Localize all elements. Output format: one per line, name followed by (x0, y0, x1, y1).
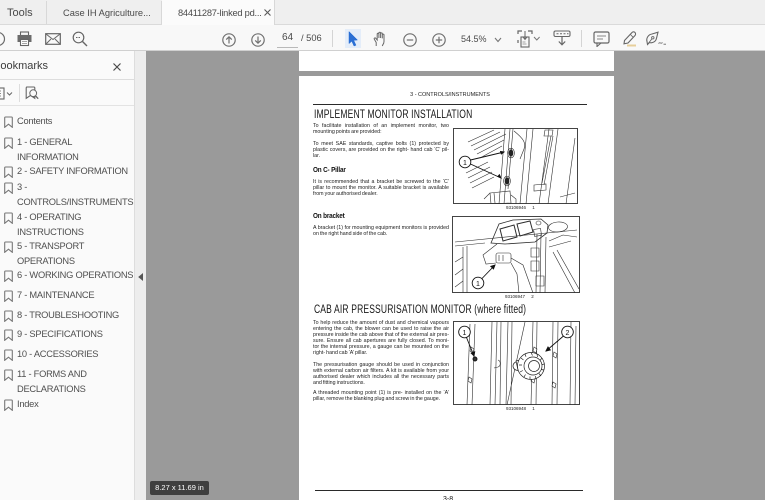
svg-text:1: 1 (476, 281, 480, 288)
svg-text:2: 2 (566, 330, 570, 337)
svg-text:1: 1 (463, 330, 467, 337)
svg-text:1: 1 (463, 160, 467, 167)
